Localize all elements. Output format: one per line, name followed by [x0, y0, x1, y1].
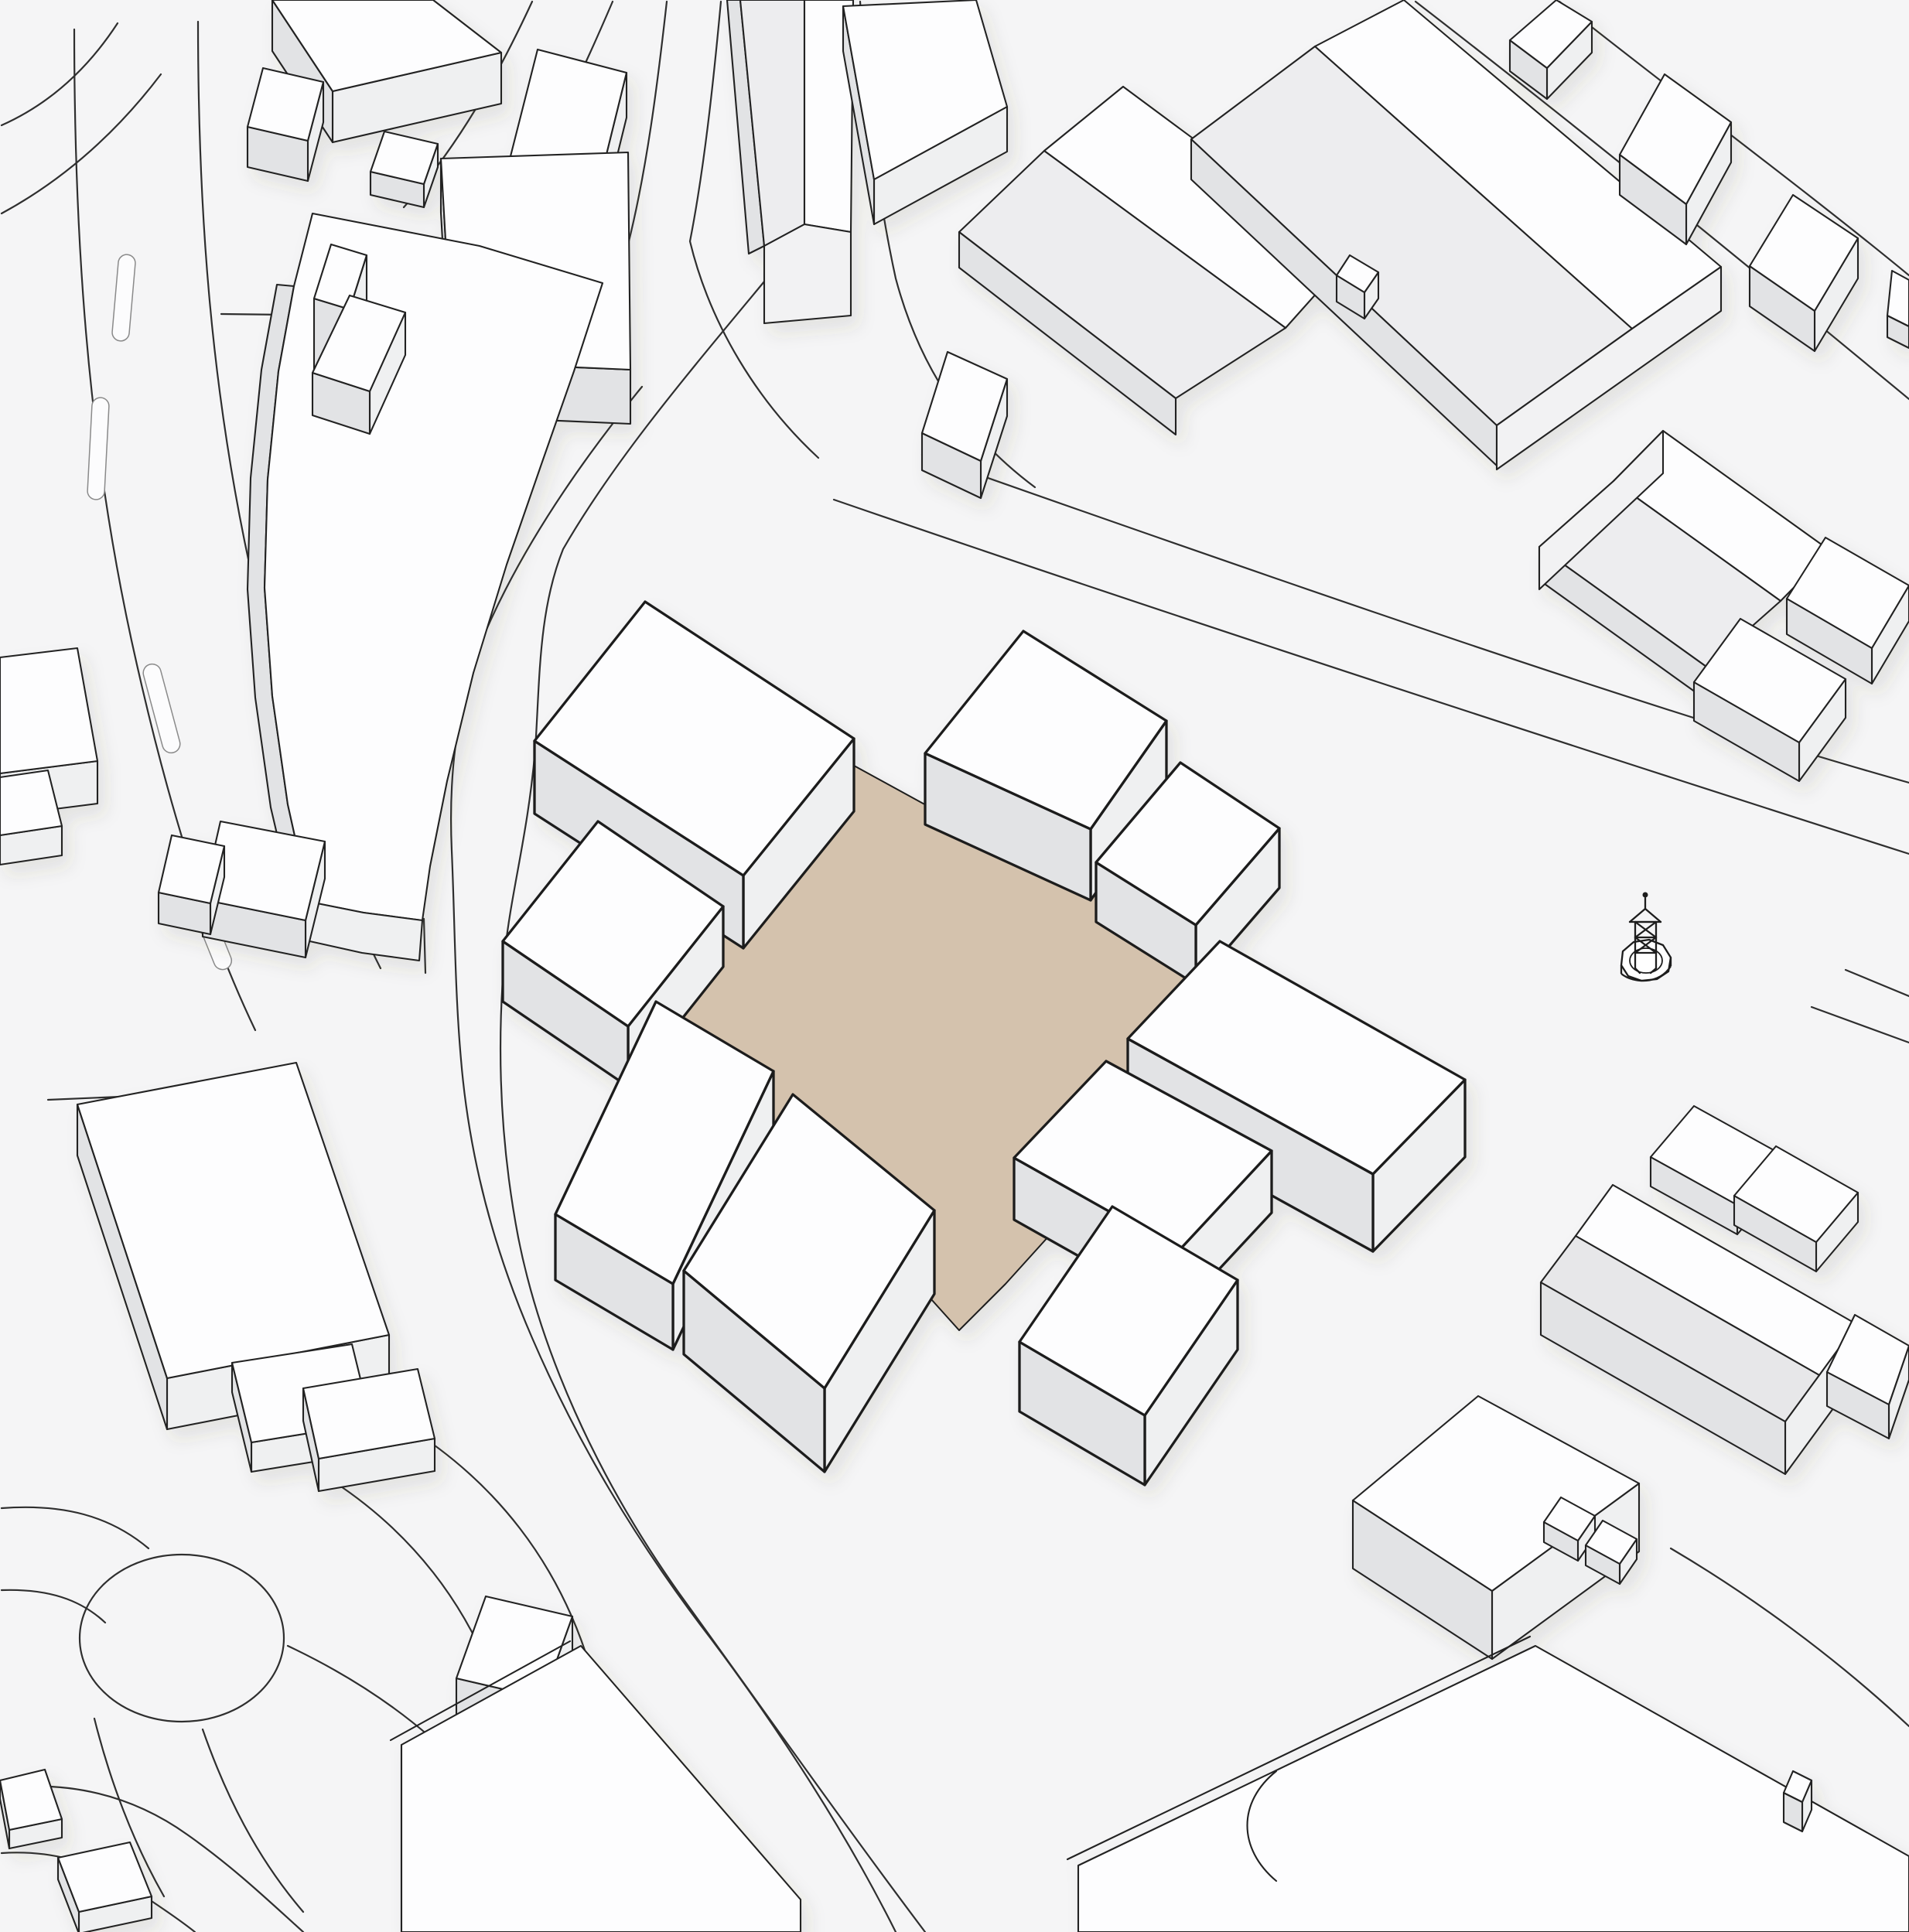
building-gabled-topcenter-face: [764, 224, 851, 323]
block-topleft-cube: [248, 68, 323, 181]
block-topleft-kiosk: [371, 131, 438, 207]
block-slab-end-2: [159, 835, 224, 934]
block-right-edge-roof: [1887, 271, 1909, 326]
block-right-edge: [1887, 271, 1909, 348]
diagram-stage: [0, 0, 1909, 1932]
block-bottomleft-annex-2: [303, 1369, 435, 1491]
massing-diagram-svg: [0, 0, 1909, 1932]
monument-finial: [1643, 893, 1648, 898]
